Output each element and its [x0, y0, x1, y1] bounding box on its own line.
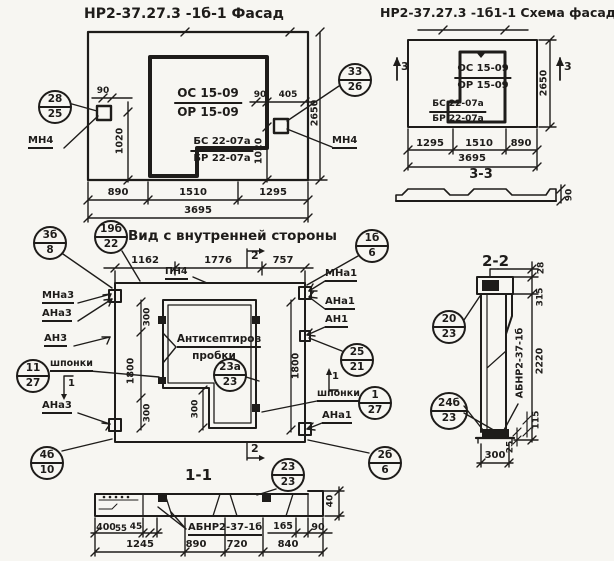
- label-an3: АН3: [44, 334, 67, 347]
- dim-28: 28: [538, 262, 547, 275]
- dim-1800-left: 1800: [126, 358, 136, 384]
- label-ana1: АНа1: [325, 297, 355, 310]
- label-abnr-22: АБНР2-37-1б: [515, 328, 525, 398]
- facade-callout-left: 28 25: [38, 90, 72, 124]
- dim-165: 165: [273, 522, 293, 532]
- dim-720: 720: [227, 540, 248, 550]
- callout-1-27: 1 27: [358, 386, 392, 420]
- dim-1800-right: 1800: [291, 353, 301, 379]
- label-shponki-left: шпонки: [50, 359, 93, 372]
- section-mark-1-left: 1: [68, 379, 75, 389]
- dim-1162: 1162: [131, 256, 159, 266]
- inner-view-title: Вид с внутренней стороны: [128, 230, 337, 244]
- dim-90-right: 90: [254, 91, 267, 100]
- callout-19b-22: 19б 22: [94, 220, 128, 254]
- dim-3695-facade: 3695: [184, 206, 212, 216]
- label-mna3: МНа3: [42, 291, 74, 304]
- label-ana3-2: АНа3: [42, 401, 72, 414]
- dim-1020-left: 1020: [115, 128, 125, 154]
- anchor-label-mn4-left: МН4: [28, 136, 53, 149]
- label-pn4: ПН4: [165, 267, 188, 280]
- label-ana3: АНа3: [42, 309, 72, 322]
- label-shponki-right: шпонки: [317, 389, 360, 402]
- callout-24b-23: 24б 23: [430, 392, 468, 430]
- callout-11-27: 11 27: [16, 359, 50, 393]
- section-mark-2-top: 2: [251, 250, 259, 261]
- dim-300-mid: 300: [144, 404, 153, 423]
- dim-45: 45: [130, 523, 143, 532]
- dim-1295-schema: 1295: [416, 139, 444, 149]
- section-33-title: 3-3: [469, 168, 493, 181]
- section-11-title: 1-1: [185, 468, 212, 483]
- callout-23a-23: 23а 23: [213, 358, 247, 392]
- dim-25: 25: [507, 441, 516, 454]
- dim-2650-facade: 2650: [310, 100, 320, 126]
- callout-20-23: 20 23: [432, 310, 466, 344]
- section-mark-2-bottom: 2: [251, 443, 259, 454]
- section-22-title: 2-2: [482, 254, 509, 269]
- drawing-sheet: НР2-37.27.3 -1б-1 Фасад 28 25 МН4 90 102…: [0, 0, 614, 561]
- dim-2650-schema: 2650: [539, 70, 549, 96]
- dim-1020-right: 1020: [254, 138, 264, 164]
- linework-layer: [0, 0, 614, 561]
- dim-3695-schema: 3695: [458, 154, 486, 164]
- callout-23-23: 23 23: [271, 458, 305, 492]
- dim-315: 315: [537, 288, 546, 307]
- callout-1b-6: 1б 6: [355, 229, 389, 263]
- plugs-text-line1: Антисептиров: [177, 334, 261, 348]
- facade-callout-right: 33 26: [338, 63, 372, 97]
- callout-4b-10: 4б 10: [30, 446, 64, 480]
- anchor-label-mn4-right: МН4: [332, 136, 357, 149]
- dim-40: 40: [327, 495, 336, 508]
- dim-890-facade: 890: [108, 188, 129, 198]
- dim-55: 55: [115, 525, 127, 534]
- dim-400: 400: [96, 523, 116, 533]
- dim-757: 757: [273, 256, 294, 266]
- dim-890-11: 890: [186, 540, 207, 550]
- label-abnr-11: АБНР2-37-1б: [188, 523, 262, 536]
- dim-1295-facade: 1295: [259, 188, 287, 198]
- schema-title: НР2-37.27.3 -1б1-1 Схема фасада: [380, 7, 614, 20]
- dim-2220: 2220: [535, 348, 545, 374]
- label-ana1-2: АНа1: [322, 411, 352, 424]
- schema-opening-mark: ОС 15-09 ОР 15-09: [454, 63, 511, 92]
- label-mna1: МНа1: [325, 269, 357, 282]
- callout-2b-6: 2б 6: [368, 446, 402, 480]
- dim-300-22: 300: [485, 451, 506, 461]
- dim-1510-schema: 1510: [465, 139, 493, 149]
- section-mark-3-right: 3: [564, 61, 572, 72]
- dim-1245: 1245: [126, 540, 154, 550]
- dim-405: 405: [279, 91, 298, 100]
- dim-115: 115: [533, 411, 542, 430]
- dim-90-section-33: 90: [566, 189, 575, 202]
- dim-300-bottom: 300: [192, 400, 201, 419]
- dim-90-11: 90: [311, 523, 324, 533]
- label-an1: АН1: [325, 315, 348, 328]
- facade-title: НР2-37.27.3 -1б-1 Фасад: [84, 7, 284, 21]
- dim-890-schema: 890: [511, 139, 532, 149]
- dim-90-left: 90: [97, 87, 110, 96]
- callout-3b-8: 3б 8: [33, 226, 67, 260]
- facade-beam-mark: БС 22-07а БР 22-07а: [190, 136, 253, 165]
- section-mark-3-left: 3: [401, 61, 409, 72]
- dim-1510-facade: 1510: [179, 188, 207, 198]
- section-mark-1-right: 1: [332, 372, 339, 382]
- dim-840: 840: [278, 540, 299, 550]
- callout-25-21: 25 21: [340, 343, 374, 377]
- dim-1776: 1776: [204, 256, 232, 266]
- facade-opening-mark: ОС 15-09 ОР 15-09: [174, 86, 242, 120]
- dim-300-top: 300: [144, 308, 153, 327]
- schema-beam-mark: БС 22-07а БР 22-07а: [429, 99, 486, 126]
